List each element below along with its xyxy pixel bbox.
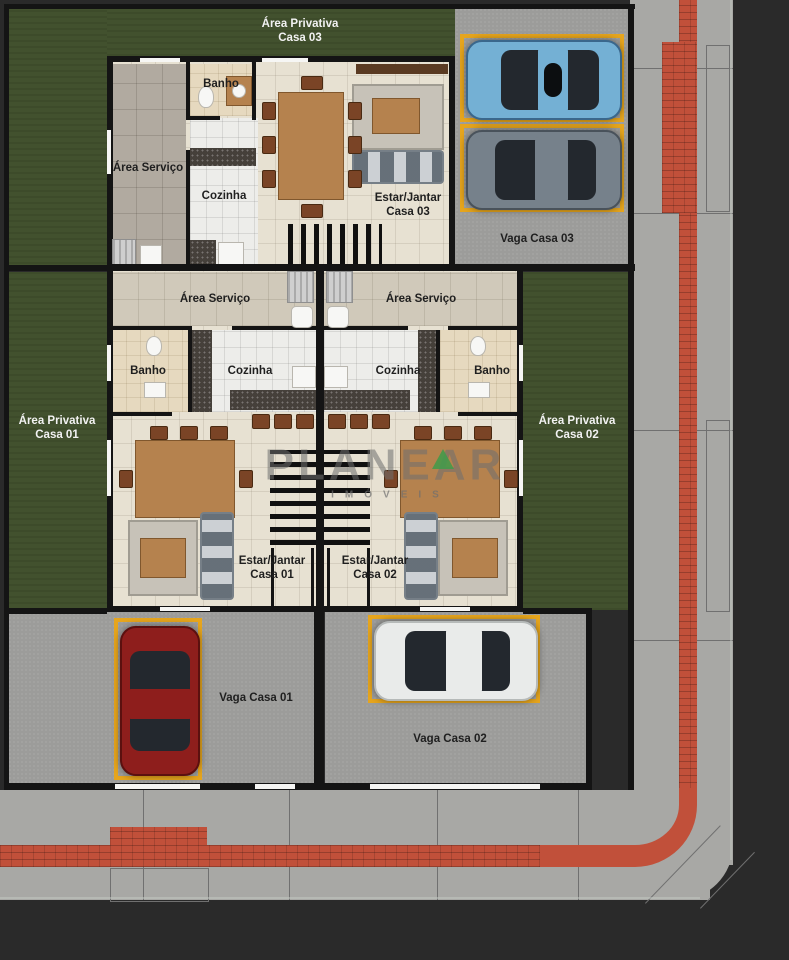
vaga02-right-wall xyxy=(586,612,592,790)
casa01-laundry-tank xyxy=(291,306,313,328)
casa03-tv-panel xyxy=(356,64,448,74)
chair xyxy=(474,426,492,440)
casa03-counter xyxy=(190,148,256,166)
lawn-top-left xyxy=(8,8,107,270)
casa02-counter-strip xyxy=(418,330,436,412)
casa03-window xyxy=(262,58,308,62)
casa01-coffee-table xyxy=(140,538,186,578)
label-area-servico-casa03: Área Serviço xyxy=(113,161,183,175)
label-line: Estar/Jantar xyxy=(375,191,441,205)
chair xyxy=(262,170,276,188)
duplex-window xyxy=(107,440,111,496)
car-roof xyxy=(446,628,481,693)
duplex-partition xyxy=(448,326,518,330)
casa01-counter-strip xyxy=(192,330,212,412)
curb-right xyxy=(730,0,732,860)
stool xyxy=(274,414,292,429)
chair xyxy=(239,470,253,488)
casa01-sofa xyxy=(200,512,234,600)
site-plan: Área Privativa Casa 03 Área Privativa Ca… xyxy=(0,0,789,960)
car-red xyxy=(120,626,200,776)
casa02-laundry-tank xyxy=(327,306,349,328)
chair xyxy=(444,426,462,440)
casa01-sink xyxy=(144,382,166,398)
car-sunroof xyxy=(544,63,562,96)
chair xyxy=(119,470,133,488)
casa02-banho-wall xyxy=(458,412,518,416)
casa03-banho-wall xyxy=(252,62,256,120)
casa01-toilet xyxy=(146,336,162,356)
casa03-window xyxy=(107,130,111,174)
casa03-stove-counter xyxy=(190,240,216,266)
label-area-privativa-casa01: Área Privativa Casa 01 xyxy=(19,414,96,442)
label-area-servico-casa01: Área Serviço xyxy=(180,292,250,306)
chair xyxy=(301,76,323,90)
casa03-dining-table xyxy=(278,92,344,200)
label-line: Casa 03 xyxy=(375,205,441,219)
casa01-washing-machine xyxy=(287,271,314,303)
boundary-wall-right xyxy=(628,4,634,790)
duplex-area-servico-floor xyxy=(112,272,518,326)
chair xyxy=(301,204,323,218)
chair xyxy=(348,136,362,154)
watermark-subtitle: IMÓVEIS xyxy=(265,490,506,501)
casa01-dining-table xyxy=(135,440,235,518)
chair xyxy=(504,470,518,488)
duplex-window xyxy=(519,440,523,496)
label-area-privativa-casa02: Área Privativa Casa 02 xyxy=(539,414,616,442)
casa01-banho-wall xyxy=(112,412,172,416)
casa02-sink xyxy=(468,382,490,398)
casa02-washing-machine xyxy=(326,271,353,303)
watermark: PLANEAR IMÓVEIS xyxy=(265,444,506,501)
label-banho-casa02: Banho xyxy=(474,364,510,378)
casa03-stairs xyxy=(288,224,382,266)
label-area-servico-casa02: Área Serviço xyxy=(386,292,456,306)
casa02-stove xyxy=(324,366,348,388)
casa02-coffee-table xyxy=(452,538,498,578)
stool xyxy=(296,414,314,429)
car-roof xyxy=(127,689,192,718)
label-cozinha-casa02: Cozinha xyxy=(376,364,421,378)
label-line: Área Privativa xyxy=(539,414,616,428)
label-vaga-casa02: Vaga Casa 02 xyxy=(413,732,487,746)
chair xyxy=(348,170,362,188)
gate-casa02 xyxy=(370,784,540,789)
casa03-washing-machine xyxy=(112,239,136,265)
car-white xyxy=(374,621,538,701)
label-banho-casa01: Banho xyxy=(130,364,166,378)
label-line: Casa 02 xyxy=(342,568,408,582)
red-path-horizontal xyxy=(0,845,545,867)
label-area-privativa-casa03: Área Privativa Casa 03 xyxy=(262,17,339,45)
label-cozinha-casa01: Cozinha xyxy=(228,364,273,378)
vaga-divider-wall xyxy=(314,612,324,788)
casa03-laundry-tank xyxy=(140,245,162,265)
car-blue xyxy=(466,40,622,120)
car-gray xyxy=(466,130,622,210)
label-vaga-casa01: Vaga Casa 01 xyxy=(219,691,293,705)
label-banho-casa03: Banho xyxy=(203,77,239,91)
watermark-brand: PLANEAR xyxy=(265,444,506,488)
chair xyxy=(180,426,198,440)
duplex-door xyxy=(420,607,470,611)
stool xyxy=(328,414,346,429)
label-line: Área Privativa xyxy=(262,17,339,31)
casa02-sofa xyxy=(404,512,438,600)
red-path-wide-block-bottom xyxy=(110,827,207,867)
curb-bottom xyxy=(0,897,700,899)
casa03-fridge xyxy=(218,242,244,266)
boundary-wall-top xyxy=(4,4,635,9)
label-estar-jantar-casa01: Estar/Jantar Casa 01 xyxy=(239,554,305,582)
casa02-banho-wall xyxy=(436,330,440,412)
gate xyxy=(255,784,295,789)
chair xyxy=(262,136,276,154)
boundary-wall-left xyxy=(4,4,9,790)
duplex-window xyxy=(519,345,523,381)
chair xyxy=(414,426,432,440)
label-line: Casa 02 xyxy=(539,428,616,442)
label-estar-jantar-casa02: Estar/Jantar Casa 02 xyxy=(342,554,408,582)
casa02-counter xyxy=(324,390,410,410)
chair xyxy=(150,426,168,440)
lot-wall xyxy=(8,608,107,614)
stool xyxy=(350,414,368,429)
casa03-window xyxy=(140,58,180,62)
red-path-wide-block-right xyxy=(662,42,697,213)
label-estar-jantar-casa03: Estar/Jantar Casa 03 xyxy=(375,191,441,219)
label-line: Estar/Jantar xyxy=(239,554,305,568)
duplex-door xyxy=(160,607,210,611)
lot-wall xyxy=(523,608,592,614)
label-line: Estar/Jantar xyxy=(342,554,408,568)
label-line: Casa 03 xyxy=(262,31,339,45)
chair xyxy=(262,102,276,120)
casa02-toilet xyxy=(470,336,486,356)
casa01-counter xyxy=(230,390,316,410)
casa01-stove xyxy=(292,366,316,388)
duplex-wall-top xyxy=(107,264,635,271)
duplex-window xyxy=(107,345,111,381)
gate-casa01 xyxy=(115,784,200,789)
label-line: Casa 01 xyxy=(239,568,305,582)
stool xyxy=(252,414,270,429)
stool xyxy=(372,414,390,429)
chair xyxy=(210,426,228,440)
duplex-partition xyxy=(112,326,192,330)
lawn-divider-wall xyxy=(8,265,107,271)
car-roof xyxy=(535,137,568,202)
label-line: Casa 01 xyxy=(19,428,96,442)
label-cozinha-casa03: Cozinha xyxy=(202,189,247,203)
casa03-banho-wall xyxy=(186,62,190,120)
label-line: Área Privativa xyxy=(19,414,96,428)
sidewalk-panel xyxy=(706,420,730,612)
casa03-banho-wall xyxy=(186,116,220,120)
casa03-sofa xyxy=(352,150,444,184)
label-vaga-casa03: Vaga Casa 03 xyxy=(500,232,574,246)
sidewalk-panel xyxy=(706,45,730,212)
chair xyxy=(348,102,362,120)
casa03-coffee-table xyxy=(372,98,420,134)
